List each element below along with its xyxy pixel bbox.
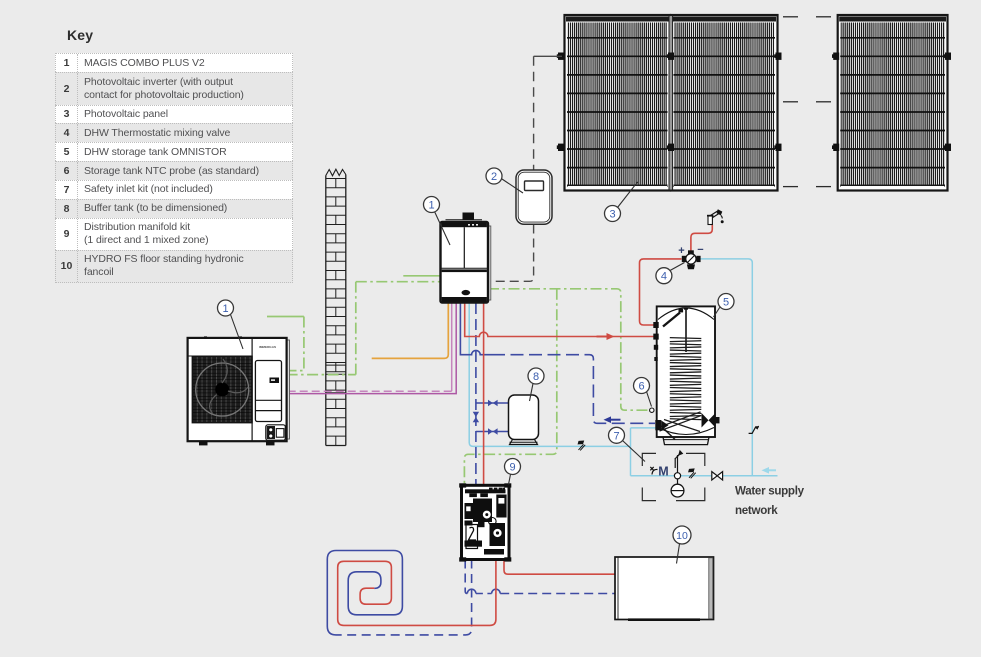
svg-text:4: 4 bbox=[661, 271, 667, 283]
svg-text:5: 5 bbox=[723, 296, 729, 308]
svg-text:1: 1 bbox=[428, 199, 434, 211]
svg-text:−: − bbox=[697, 244, 703, 256]
svg-text:9: 9 bbox=[509, 461, 515, 473]
svg-text:IMMERGAS: IMMERGAS bbox=[259, 345, 276, 349]
svg-text:network: network bbox=[735, 504, 778, 517]
svg-text:Water supply: Water supply bbox=[735, 485, 805, 498]
svg-text:M: M bbox=[658, 465, 668, 479]
svg-text:2: 2 bbox=[491, 171, 497, 183]
svg-text:7: 7 bbox=[613, 430, 619, 442]
svg-text:1: 1 bbox=[222, 303, 228, 315]
svg-text:10: 10 bbox=[676, 530, 688, 542]
svg-text:8: 8 bbox=[533, 371, 539, 383]
svg-text:+: + bbox=[678, 245, 684, 257]
svg-text:6: 6 bbox=[638, 380, 644, 392]
svg-text:3: 3 bbox=[609, 208, 615, 220]
